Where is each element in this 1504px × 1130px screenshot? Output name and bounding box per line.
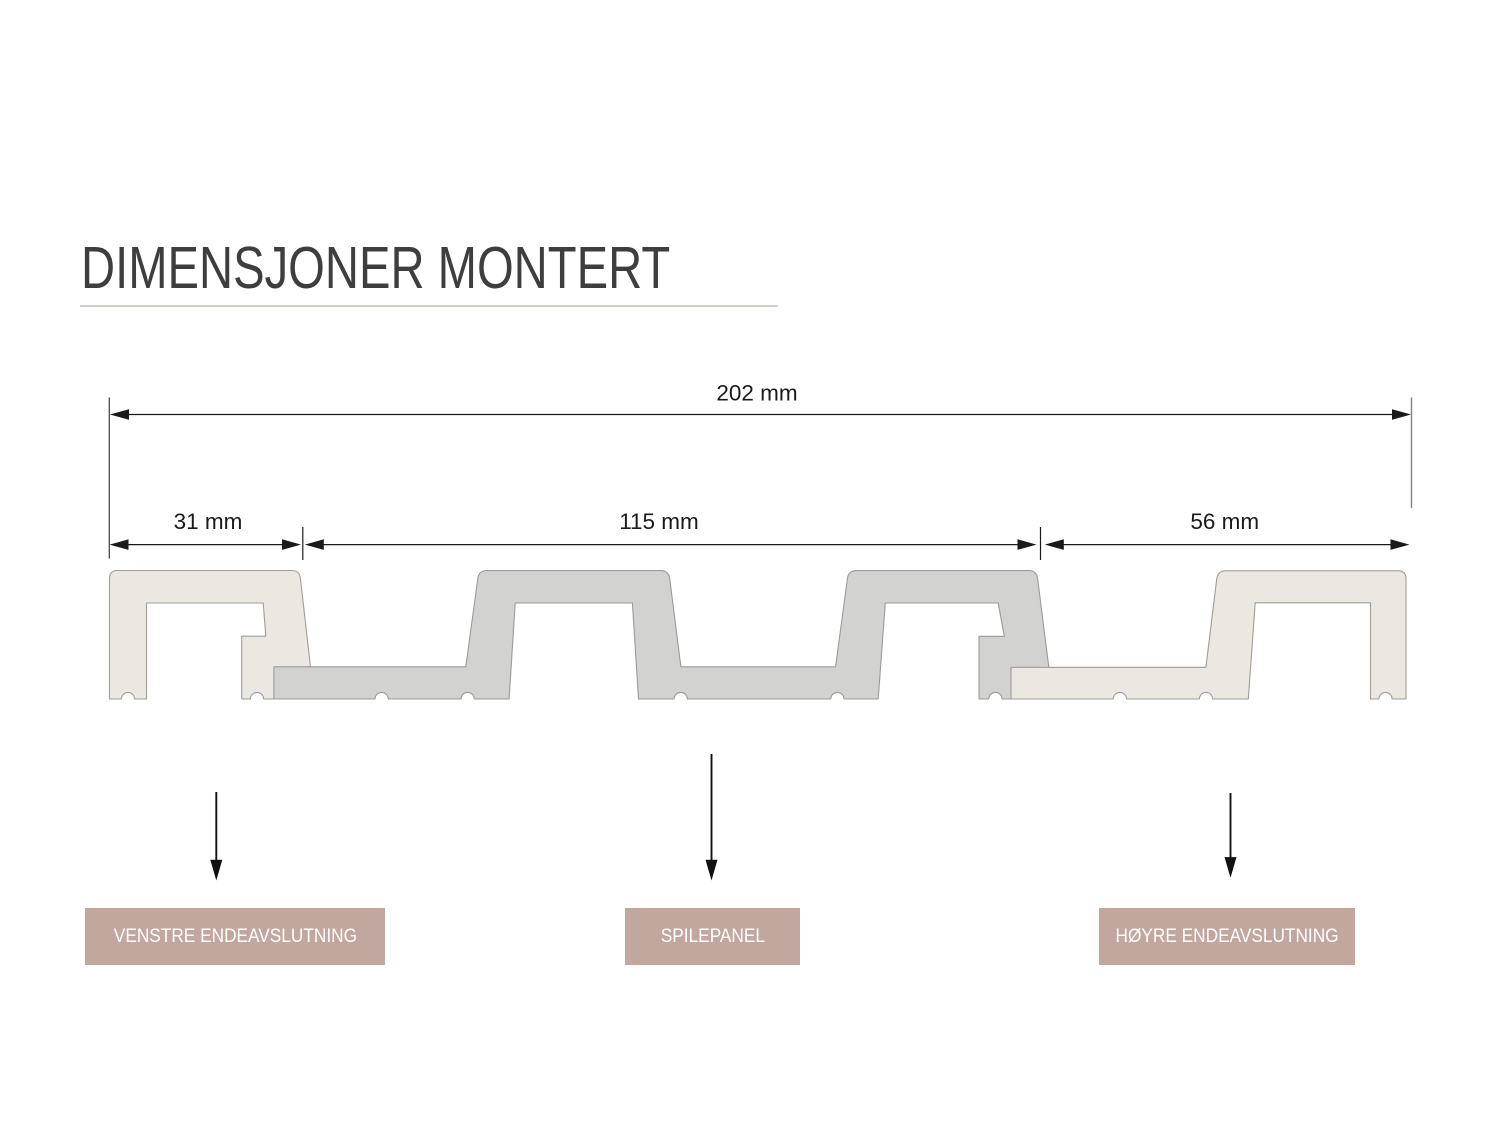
svg-text:31 mm: 31 mm — [174, 509, 243, 534]
svg-text:202 mm: 202 mm — [716, 381, 797, 406]
svg-text:56 mm: 56 mm — [1190, 509, 1259, 534]
svg-text:115 mm: 115 mm — [619, 509, 699, 534]
